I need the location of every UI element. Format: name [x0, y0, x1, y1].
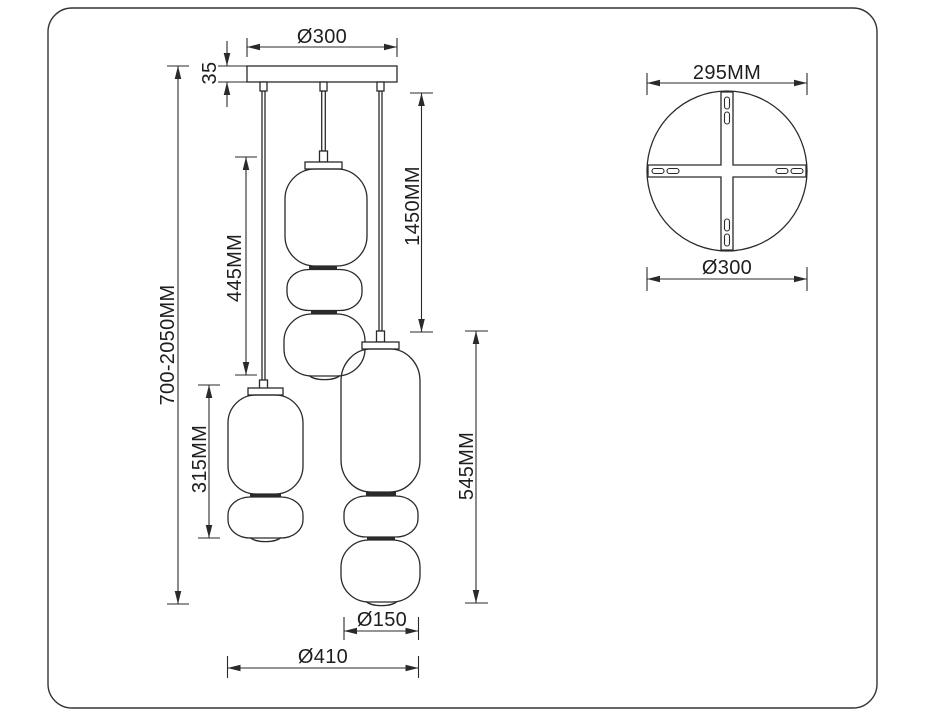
pendant-right-connector: [377, 331, 385, 342]
technical-drawing: Ø300 35 700-2050MM 445MM 1450MM: [0, 0, 925, 720]
dim-label-canopy-diameter: Ø300: [297, 26, 347, 48]
dim-label-left-pendant-height: 315MM: [189, 425, 211, 493]
cord-left: [262, 91, 265, 381]
cord-right: [379, 91, 382, 331]
canopy-plate: [247, 66, 397, 82]
dim-label-right-pendant-height: 545MM: [456, 432, 478, 500]
dim-label-canopy-height: 35: [199, 62, 221, 85]
dim-label-topview-canopy-diameter: Ø300: [702, 257, 752, 279]
dim-label-bracket-width: 295MM: [693, 62, 761, 84]
dim-label-shade-diameter: Ø150: [357, 609, 407, 631]
dim-label-middle-pendant-height: 445MM: [224, 234, 246, 302]
pendant-right-ring1: [366, 492, 396, 497]
cord-middle: [322, 91, 326, 151]
dim-label-overall-height: 700-2050MM: [157, 285, 179, 406]
pendant-middle-connector: [320, 151, 328, 162]
pendant-middle-cap: [305, 162, 342, 169]
cord-grip-right: [377, 82, 384, 91]
pendant-right-cap: [362, 342, 399, 349]
cord-grip-left: [260, 82, 267, 91]
drawing-sheet: Ø300 35 700-2050MM 445MM 1450MM: [0, 0, 925, 720]
dim-label-cluster-width: Ø410: [298, 646, 348, 668]
dim-label-suspension-drop: 1450MM: [402, 166, 424, 246]
pendant-left-cap: [248, 388, 283, 395]
cord-grip-middle: [320, 82, 327, 91]
